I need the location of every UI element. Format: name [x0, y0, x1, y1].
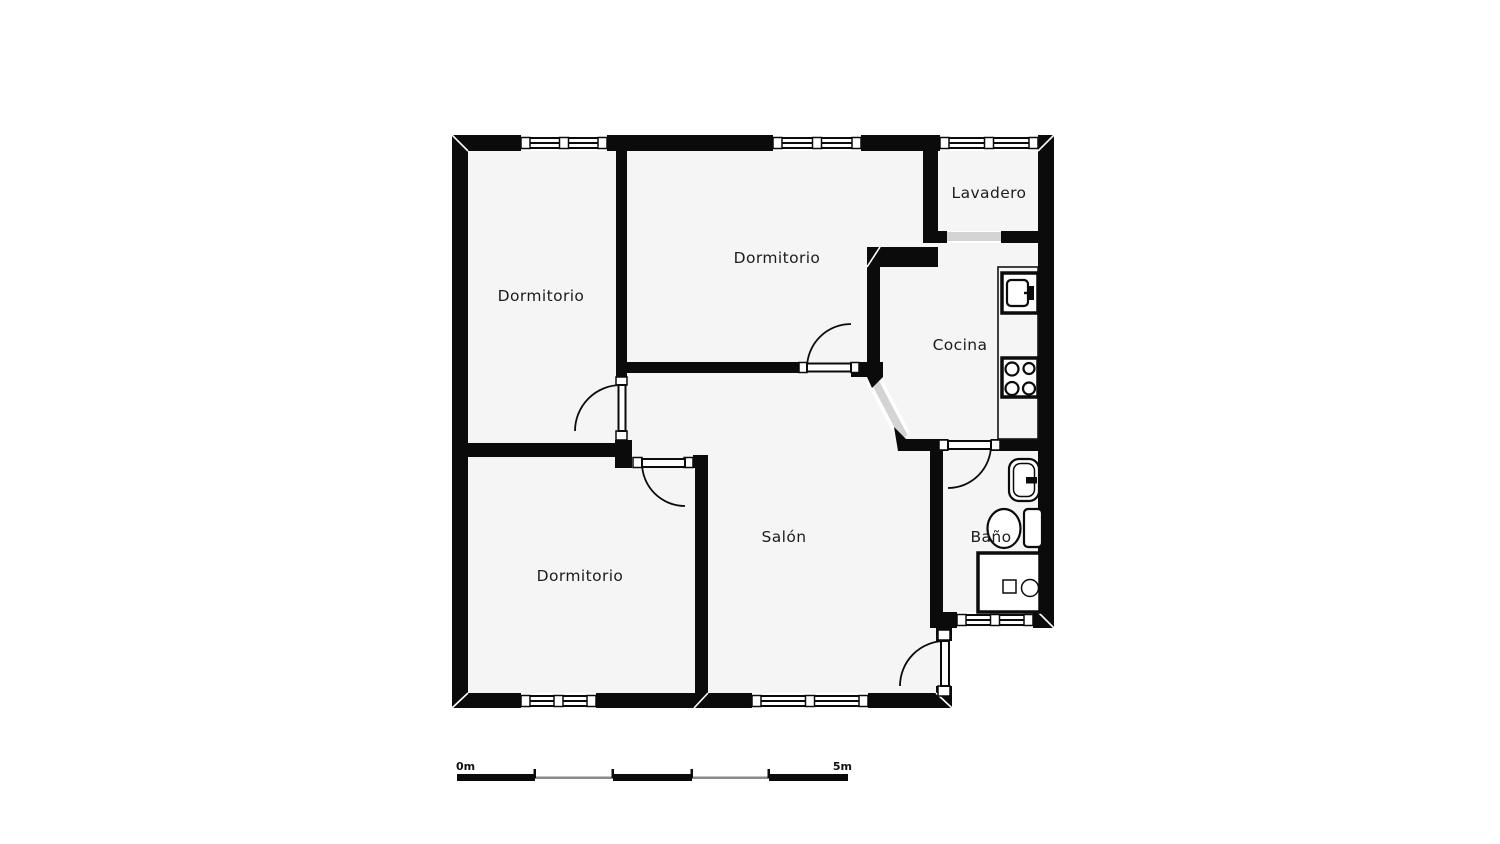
washbasin-icon: [1009, 459, 1039, 501]
kitchen-sink-icon: [1002, 273, 1038, 313]
window: [752, 693, 868, 708]
scale-start-label: 0m: [456, 760, 475, 773]
window: [940, 135, 1038, 151]
room-label-bano: Baño: [970, 528, 1011, 546]
window: [521, 135, 607, 151]
window: [521, 693, 596, 708]
floor-plan-page: Dormitorio Dormitorio Lavadero Cocina Do…: [0, 0, 1500, 844]
floor-plan-svg: Dormitorio Dormitorio Lavadero Cocina Do…: [0, 0, 1500, 844]
room-label-lavadero: Lavadero: [952, 184, 1027, 202]
room-label-dormitorio-3: Dormitorio: [537, 567, 624, 585]
room-label-cocina: Cocina: [933, 336, 988, 354]
shower-icon: [978, 553, 1045, 612]
room-label-dormitorio-2: Dormitorio: [734, 249, 821, 267]
window: [957, 612, 1033, 628]
window: [773, 135, 861, 151]
room-label-salon: Salón: [762, 528, 807, 546]
scale-bar: 0m 5m: [456, 760, 852, 781]
lavadero-cocina-opening: [938, 231, 1001, 243]
stove-icon: [1002, 358, 1038, 397]
room-label-dormitorio-1: Dormitorio: [498, 287, 585, 305]
scale-end-label: 5m: [833, 760, 852, 773]
